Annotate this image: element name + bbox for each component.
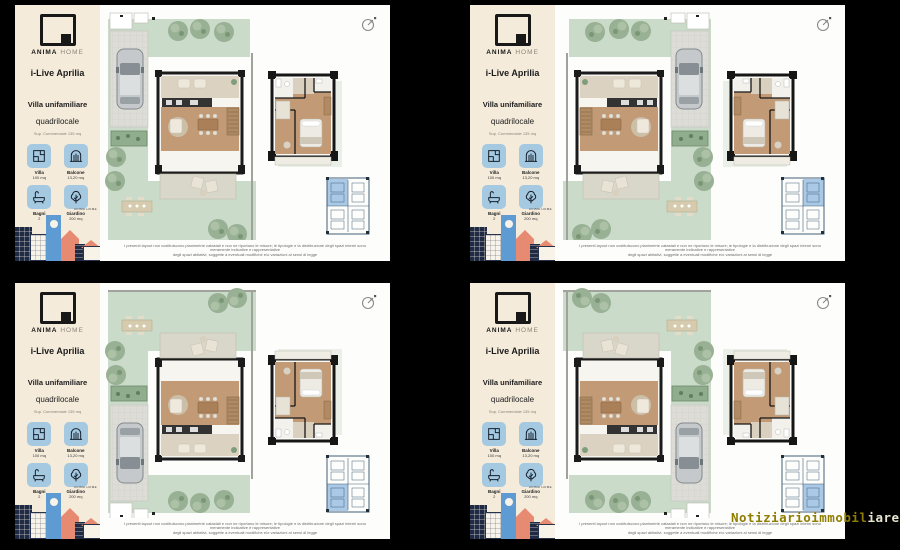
stat-value: 100 mq [33, 453, 46, 458]
footer-brand: ANIMA HOME [529, 207, 552, 211]
brand-name: ANIMA HOME [15, 327, 100, 334]
watermark-part1: Notiziarioimmobil [731, 510, 867, 525]
anima-home-logo-icon [495, 292, 531, 324]
brand-light: HOME [515, 327, 539, 334]
illustration-building [83, 246, 100, 261]
illustration-roof [516, 230, 534, 239]
upper-floor-plan [268, 71, 342, 167]
floor-plan-area: I presenti layout non costituiscono plan… [100, 5, 390, 261]
illustration-building [501, 215, 516, 261]
brand-light: HOME [60, 49, 84, 56]
sidebar: ANIMA HOME i-Live Aprilia Villa unifamil… [15, 283, 100, 539]
ground-floor-plan [563, 288, 714, 518]
stat-value: 13,20 mq [522, 175, 539, 180]
stat-balcone: Balcone 13,20 mq [516, 144, 547, 180]
upper-floor-plan [723, 71, 797, 167]
balcony-icon [523, 148, 539, 164]
balcony-icon [68, 426, 84, 442]
footer-brand: ANIMA HOME [74, 485, 97, 489]
floorplan-icon [486, 426, 502, 442]
key-plan-inset [326, 177, 369, 234]
stat-balcone: Balcone 13,20 mq [516, 422, 547, 458]
disclaimer-text: I presenti layout non costituiscono plan… [123, 522, 367, 536]
illustration-building [46, 493, 61, 539]
footer-brand: ANIMA HOME [74, 207, 97, 211]
floor-plan-drawing [100, 5, 390, 240]
brand-light: HOME [60, 327, 84, 334]
compass-north-icon [815, 293, 833, 311]
buildings-illustration: ANIMA HOME [470, 481, 555, 539]
stat-value: 13,20 mq [67, 175, 84, 180]
brochure-card: ANIMA HOME i-Live Aprilia Villa unifamil… [15, 5, 390, 261]
illustration-roof [61, 508, 79, 517]
illustration-building [46, 215, 61, 261]
illustration-building [538, 524, 555, 539]
stat-value: 100 mq [488, 453, 501, 458]
layout-label: quadrilocale [15, 395, 100, 404]
villa-type-label: Villa unifamiliare [470, 378, 555, 387]
ground-floor-plan [105, 288, 256, 518]
brand-bold: ANIMA [486, 327, 512, 334]
watermark-part2: iare.it [867, 510, 900, 525]
project-title: i-Live Aprilia [15, 68, 100, 78]
layout-label: quadrilocale [15, 117, 100, 126]
compass-north-icon [360, 293, 378, 311]
illustration-roof [61, 230, 79, 239]
project-title: i-Live Aprilia [470, 68, 555, 78]
floor-plan-drawing [555, 283, 845, 518]
brand-bold: ANIMA [31, 327, 57, 334]
anima-home-logo-icon [40, 14, 76, 46]
floor-plan-area: I presenti layout non costituiscono plan… [100, 283, 390, 539]
floor-plan-drawing [555, 5, 845, 240]
floorplan-icon [486, 148, 502, 164]
layout-label: quadrilocale [470, 395, 555, 404]
anima-home-logo-icon [495, 14, 531, 46]
buildings-illustration: ANIMA HOME [15, 481, 100, 539]
floor-plan-area: I presenti layout non costituiscono plan… [555, 5, 845, 261]
brochure-card: ANIMA HOME i-Live Aprilia Villa unifamil… [470, 283, 845, 539]
buildings-illustration: ANIMA HOME [470, 203, 555, 261]
stat-balcone: Balcone 13,20 mq [61, 422, 92, 458]
stat-villa: Villa 100 mq [479, 422, 510, 458]
disclaimer-line: degli spazi abitativi, soggette a eventu… [123, 531, 367, 536]
disclaimer-text: I presenti layout non costituiscono plan… [123, 244, 367, 258]
floor-plan-drawing [100, 283, 390, 518]
brand-name: ANIMA HOME [15, 49, 100, 56]
illustration-building [83, 524, 100, 539]
brochure-card: ANIMA HOME i-Live Aprilia Villa unifamil… [470, 5, 845, 261]
disclaimer-line: degli spazi abitativi, soggette a eventu… [578, 531, 822, 536]
stat-value: 100 mq [33, 175, 46, 180]
ground-floor-plan [105, 13, 256, 240]
villa-type-label: Villa unifamiliare [15, 378, 100, 387]
stat-balcone: Balcone 13,20 mq [61, 144, 92, 180]
balcony-icon [523, 426, 539, 442]
stat-value: 13,20 mq [67, 453, 84, 458]
layout-label: quadrilocale [470, 117, 555, 126]
upper-floor-plan [268, 349, 342, 445]
key-plan-inset [781, 177, 824, 234]
footer-brand: ANIMA HOME [529, 485, 552, 489]
brand-name: ANIMA HOME [470, 327, 555, 334]
illustration-building [501, 493, 516, 539]
page-background: ANIMA HOME i-Live Aprilia Villa unifamil… [0, 0, 900, 550]
brochure-card: ANIMA HOME i-Live Aprilia Villa unifamil… [15, 283, 390, 539]
stat-value: 13,20 mq [522, 453, 539, 458]
illustration-building [538, 246, 555, 261]
sidebar: ANIMA HOME i-Live Aprilia Villa unifamil… [470, 5, 555, 261]
villa-type-label: Villa unifamiliare [470, 100, 555, 109]
balcony-icon [68, 148, 84, 164]
floor-plan-area: I presenti layout non costituiscono plan… [555, 283, 845, 539]
floorplan-icon [31, 426, 47, 442]
disclaimer-text: I presenti layout non costituiscono plan… [578, 244, 822, 258]
stat-value: 100 mq [488, 175, 501, 180]
watermark: Notiziarioimmobiliare.it [731, 510, 900, 525]
stat-villa: Villa 100 mq [479, 144, 510, 180]
project-title: i-Live Aprilia [15, 346, 100, 356]
brand-name: ANIMA HOME [470, 49, 555, 56]
key-plan-inset [781, 455, 824, 512]
compass-north-icon [360, 15, 378, 33]
sidebar: ANIMA HOME i-Live Aprilia Villa unifamil… [470, 283, 555, 539]
stat-villa: Villa 100 mq [24, 422, 55, 458]
stat-villa: Villa 100 mq [24, 144, 55, 180]
sidebar: ANIMA HOME i-Live Aprilia Villa unifamil… [15, 5, 100, 261]
anima-home-logo-icon [40, 292, 76, 324]
ground-floor-plan [563, 13, 714, 240]
brand-light: HOME [515, 49, 539, 56]
compass-north-icon [815, 15, 833, 33]
buildings-illustration: ANIMA HOME [15, 203, 100, 261]
disclaimer-line: degli spazi abitativi, soggette a eventu… [123, 253, 367, 258]
key-plan-inset [326, 455, 369, 512]
disclaimer-line: degli spazi abitativi, soggette a eventu… [578, 253, 822, 258]
floorplan-icon [31, 148, 47, 164]
brand-bold: ANIMA [486, 49, 512, 56]
illustration-roof [516, 508, 534, 517]
project-title: i-Live Aprilia [470, 346, 555, 356]
brand-bold: ANIMA [31, 49, 57, 56]
upper-floor-plan [723, 349, 797, 445]
villa-type-label: Villa unifamiliare [15, 100, 100, 109]
